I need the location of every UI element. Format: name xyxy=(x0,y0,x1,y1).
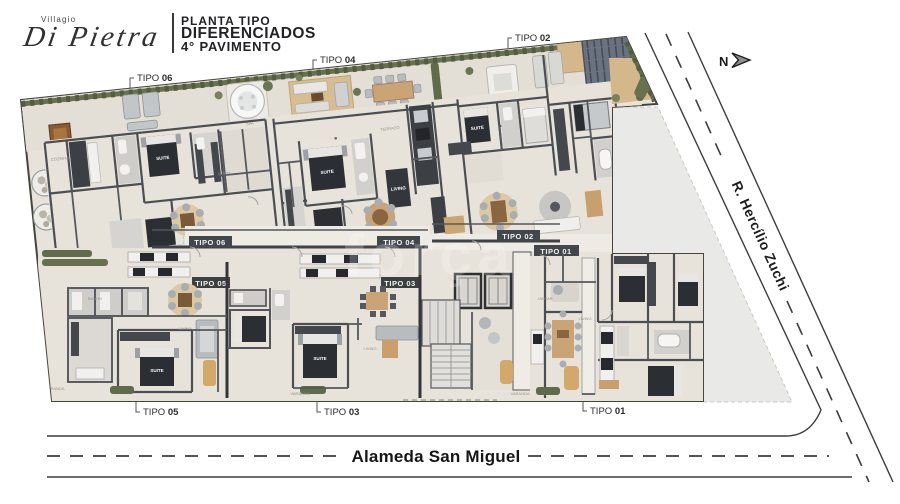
svg-text:TIPO 01: TIPO 01 xyxy=(540,247,571,256)
svg-text:N: N xyxy=(719,54,728,69)
svg-text:TIPO 06: TIPO 06 xyxy=(194,238,225,247)
svg-text:TIPO 05: TIPO 05 xyxy=(195,279,226,288)
svg-text:LIVING: LIVING xyxy=(178,326,191,331)
svg-text:JANTAR: JANTAR xyxy=(537,296,552,301)
svg-text:TIPO 02: TIPO 02 xyxy=(515,33,550,44)
svg-text:VARANDA: VARANDA xyxy=(290,391,309,396)
svg-text:BANHO: BANHO xyxy=(88,296,102,301)
svg-text:TIPO 06: TIPO 06 xyxy=(137,73,172,84)
svg-text:TIPO 04: TIPO 04 xyxy=(320,55,356,66)
svg-text:VARANDA: VARANDA xyxy=(510,391,529,396)
svg-text:SUITE: SUITE xyxy=(313,356,326,361)
svg-text:SUITE: SUITE xyxy=(150,368,163,373)
svg-text:LIVING: LIVING xyxy=(363,346,376,351)
svg-text:TIPO 01: TIPO 01 xyxy=(590,406,626,417)
svg-text:força: força xyxy=(344,223,516,288)
svg-text:TIPO 05: TIPO 05 xyxy=(143,407,179,418)
svg-text:TIPO 03: TIPO 03 xyxy=(324,407,359,418)
svg-text:SPA: SPA xyxy=(246,121,255,127)
svg-text:LIVING: LIVING xyxy=(578,316,591,321)
svg-text:R. Hercílio Zuchi: R. Hercílio Zuchi xyxy=(729,178,793,293)
svg-text:VARANDA: VARANDA xyxy=(45,386,64,391)
svg-text:Alameda San Miguel: Alameda San Miguel xyxy=(352,447,521,466)
